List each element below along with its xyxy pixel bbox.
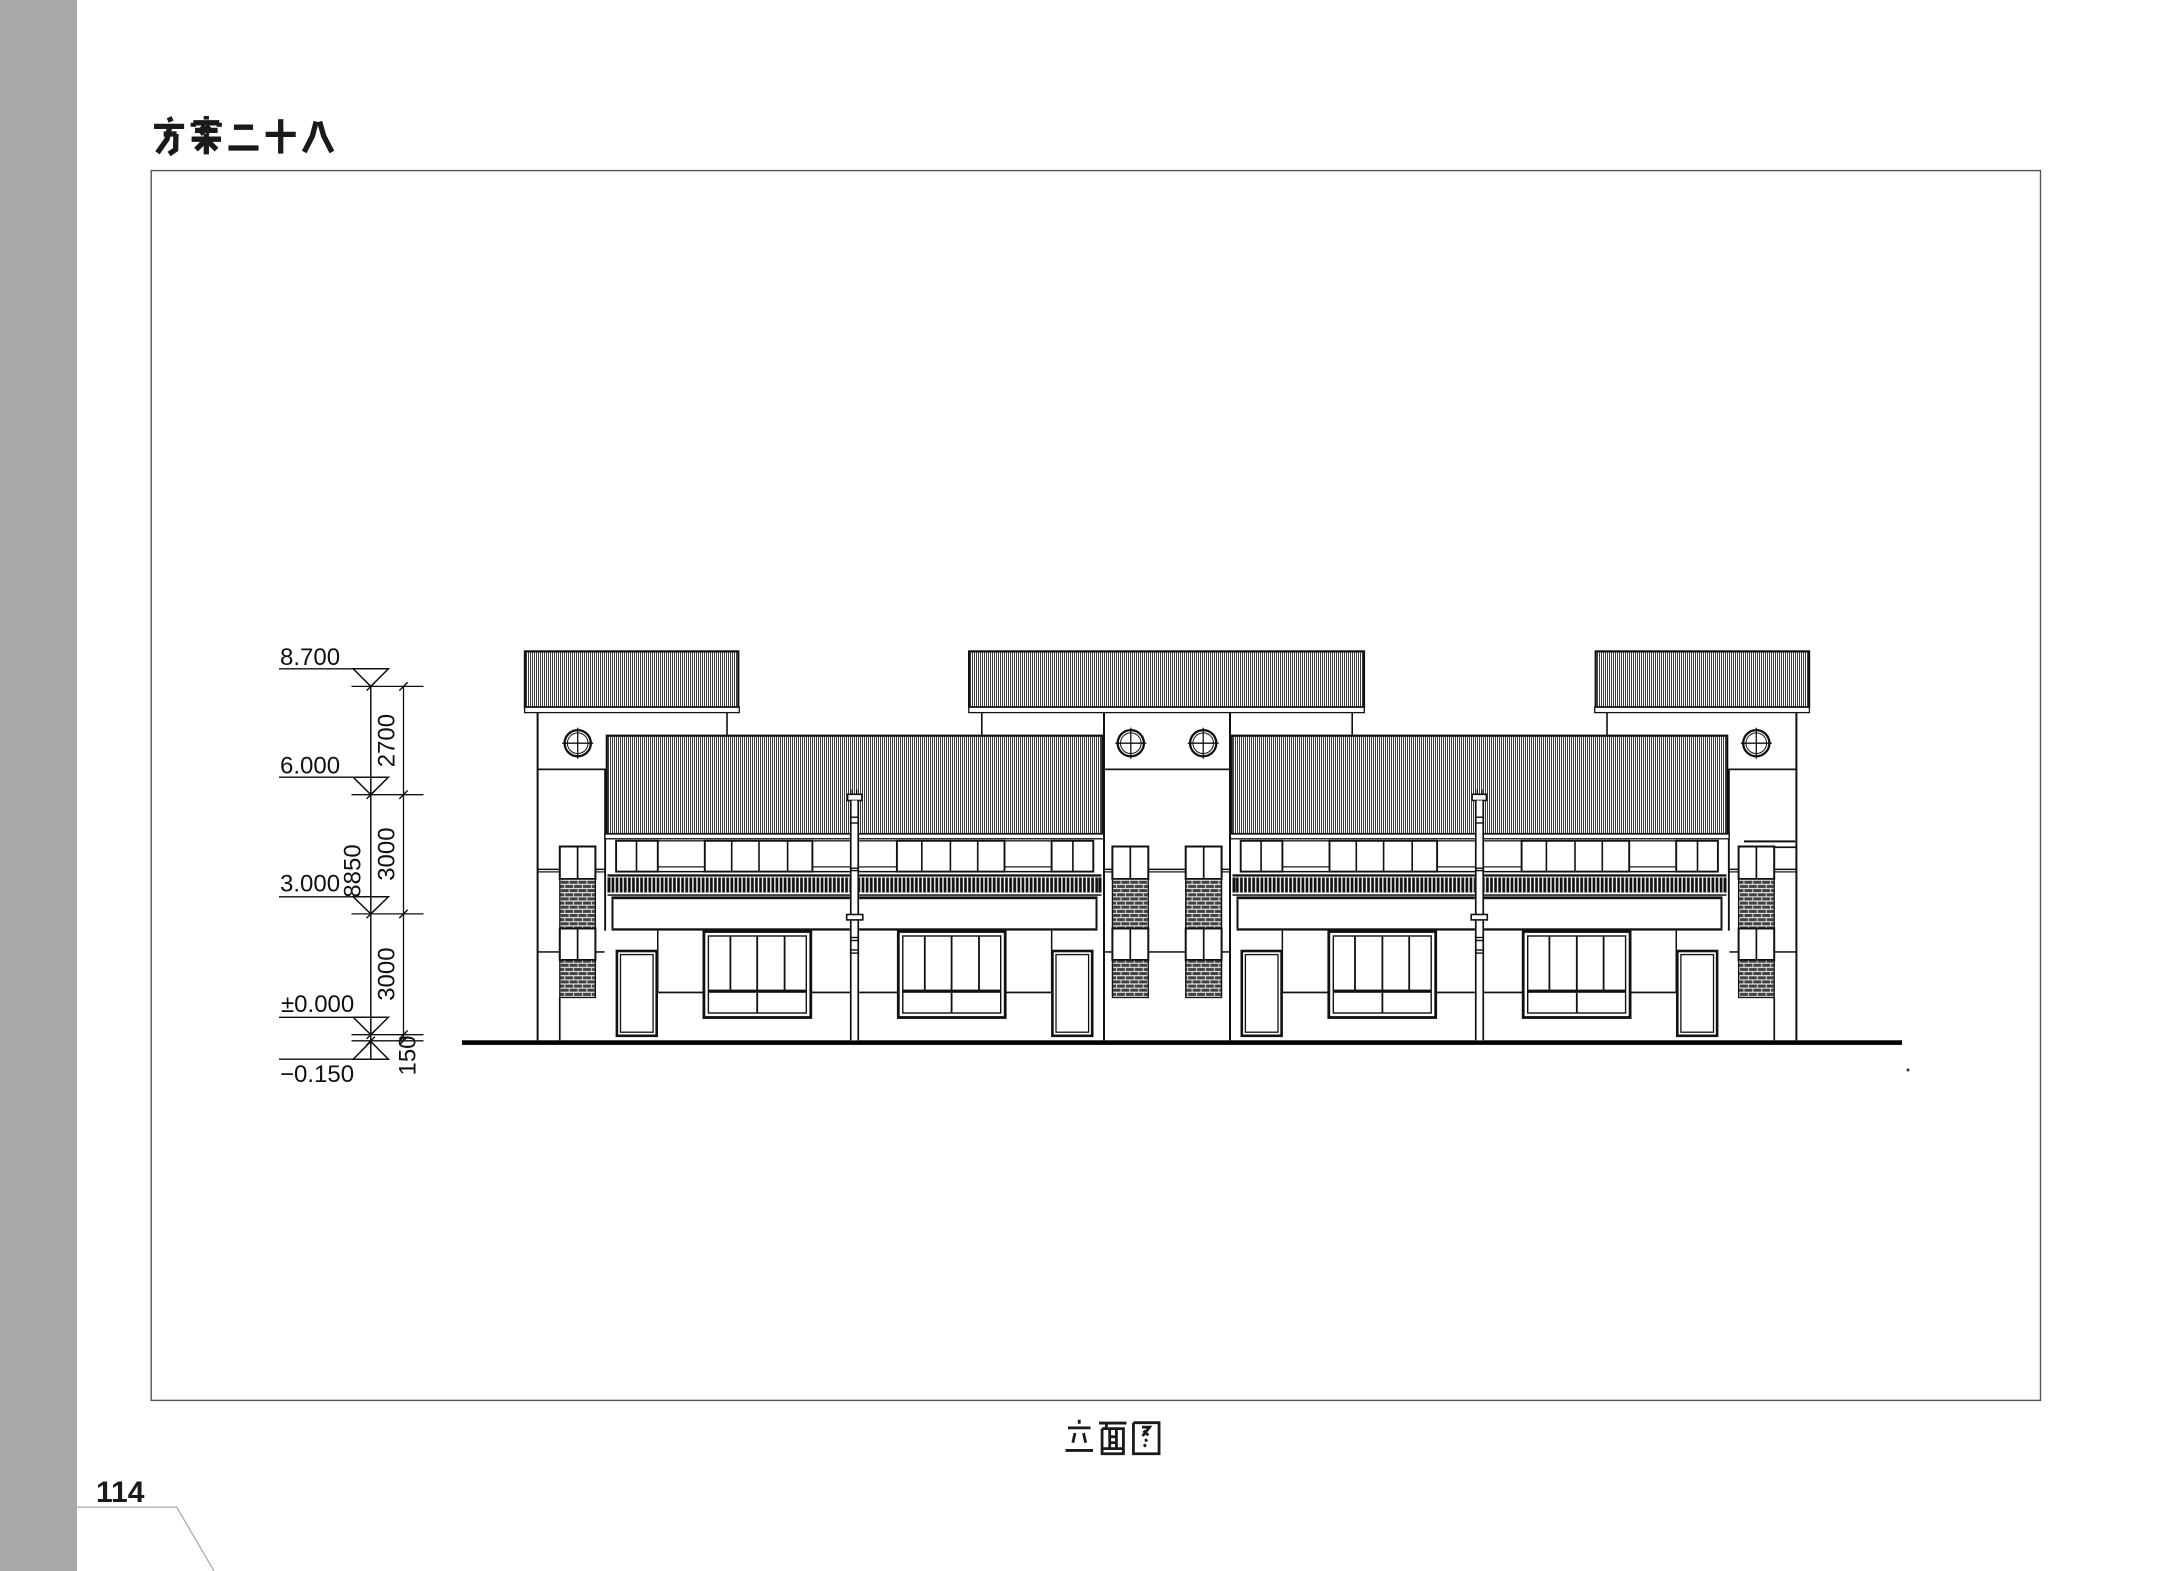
- svg-text:150: 150: [395, 1035, 422, 1075]
- svg-text:3000: 3000: [374, 947, 401, 1000]
- svg-text:3.000: 3.000: [280, 871, 340, 898]
- svg-text:−0.150: −0.150: [280, 1061, 354, 1088]
- svg-text:3000: 3000: [374, 827, 401, 880]
- svg-text:6.000: 6.000: [280, 753, 340, 780]
- svg-text:8850: 8850: [340, 844, 367, 897]
- svg-text:2700: 2700: [374, 714, 401, 767]
- svg-text:114: 114: [96, 1476, 145, 1509]
- svg-text:8.700: 8.700: [280, 644, 340, 671]
- svg-text:±0.000: ±0.000: [281, 991, 354, 1018]
